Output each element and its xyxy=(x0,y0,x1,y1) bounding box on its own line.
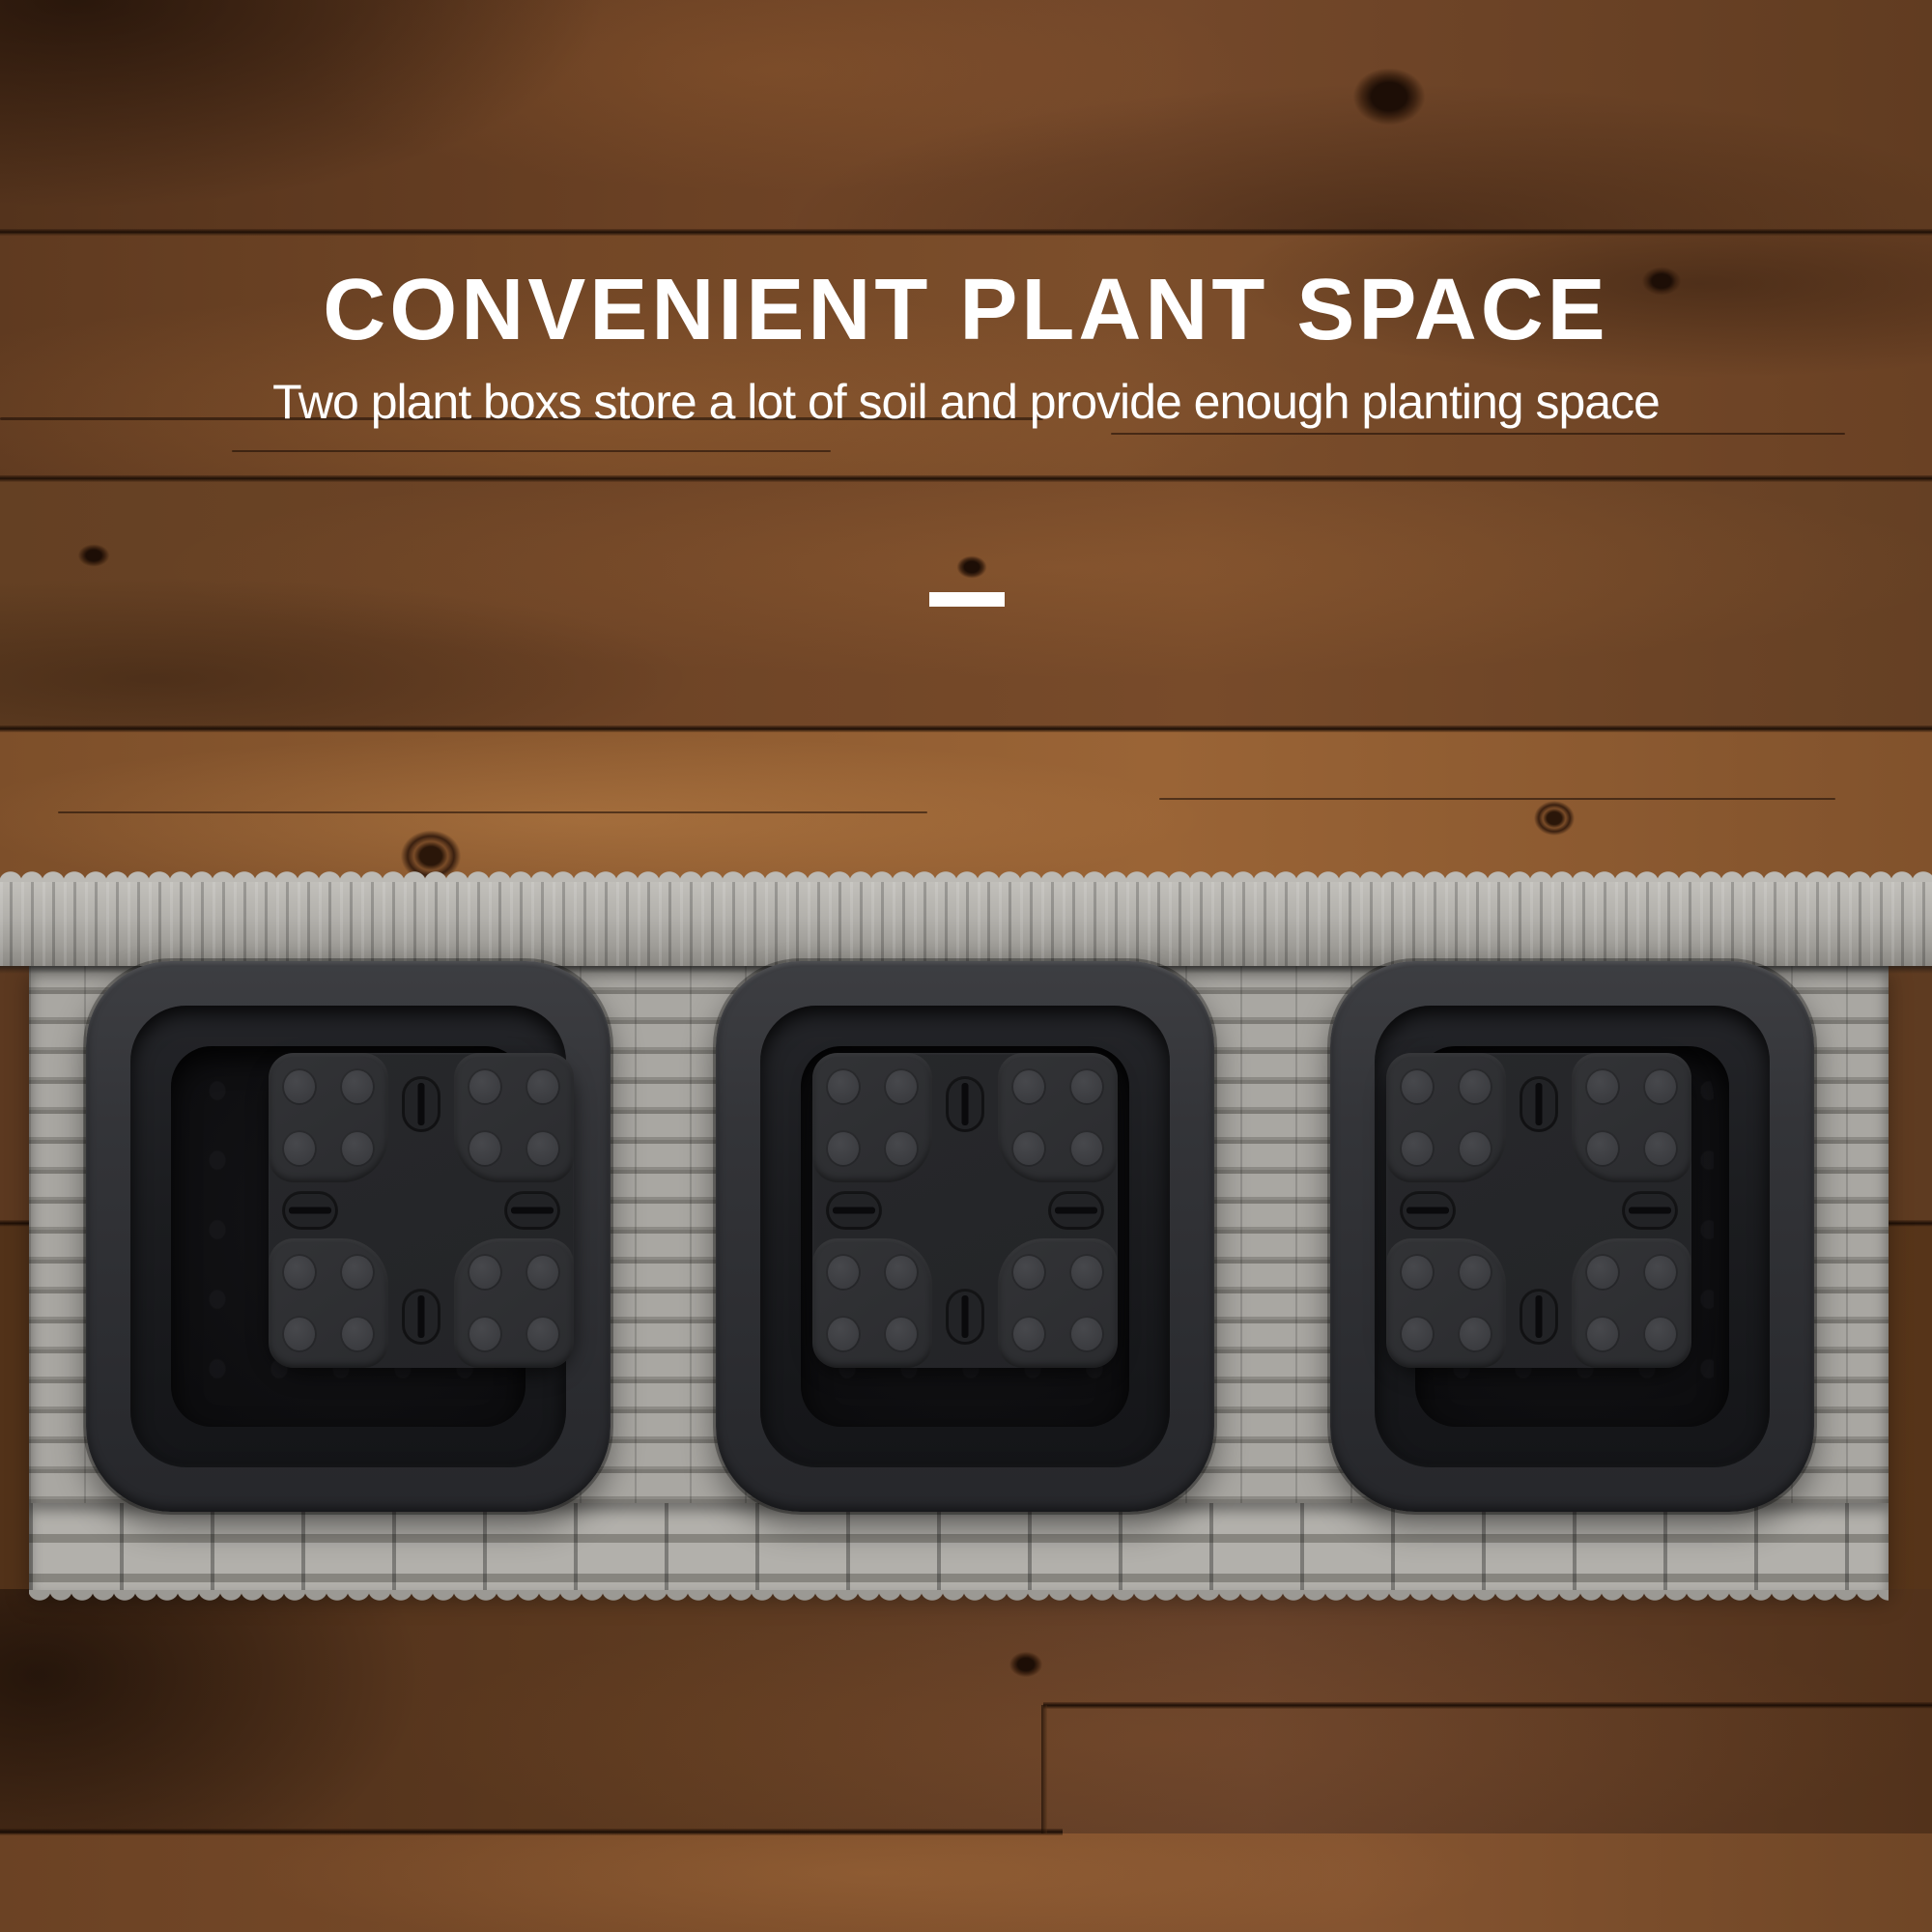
drainage-dot xyxy=(1069,1130,1104,1167)
drainage-dot xyxy=(1400,1254,1435,1291)
drainage-dot xyxy=(1069,1254,1104,1291)
plank-seam xyxy=(1043,1702,1932,1709)
drainage-dot xyxy=(282,1316,317,1352)
plant-pot-center xyxy=(716,961,1214,1512)
drainage-dot xyxy=(282,1254,317,1291)
drainage-dot xyxy=(1458,1130,1492,1167)
plant-pot-left xyxy=(86,961,611,1512)
drainage-dot xyxy=(526,1068,560,1105)
drainage-dot xyxy=(1011,1130,1046,1167)
screw-slot xyxy=(1048,1191,1104,1230)
screw-slot xyxy=(1520,1076,1558,1132)
insert-pad xyxy=(998,1238,1118,1368)
wood-knot xyxy=(1343,60,1435,133)
drainage-dot xyxy=(468,1254,502,1291)
insert-pad xyxy=(269,1053,388,1182)
wood-crack xyxy=(58,811,927,813)
screw-slot xyxy=(1520,1289,1558,1345)
drainage-dot xyxy=(1011,1254,1046,1291)
drainage-dot xyxy=(884,1254,919,1291)
drainage-dot xyxy=(526,1316,560,1352)
screw-slot xyxy=(504,1191,560,1230)
drainage-dot xyxy=(884,1068,919,1105)
drainage-dot xyxy=(282,1130,317,1167)
insert-pad xyxy=(812,1053,932,1182)
drainage-dot xyxy=(282,1068,317,1105)
screw-slot xyxy=(826,1191,882,1230)
insert-pad xyxy=(812,1238,932,1368)
insert-pad xyxy=(454,1053,574,1182)
drainage-dot xyxy=(468,1316,502,1352)
drainage-dot xyxy=(884,1316,919,1352)
pot-drainage-insert xyxy=(269,1053,574,1368)
screw-slot xyxy=(1622,1191,1678,1230)
wood-crack xyxy=(1111,433,1845,435)
pot-drainage-insert xyxy=(1386,1053,1691,1368)
wood-crack xyxy=(1159,798,1835,800)
drainage-dot xyxy=(1585,1254,1620,1291)
insert-pad xyxy=(1386,1053,1506,1182)
drainage-dot xyxy=(826,1254,861,1291)
insert-pad xyxy=(1572,1053,1691,1182)
plank-seam xyxy=(0,1829,1063,1835)
drainage-dot xyxy=(340,1130,375,1167)
insert-pad xyxy=(1386,1238,1506,1368)
screw-slot xyxy=(946,1289,984,1345)
wood-plank xyxy=(0,0,1932,232)
drainage-dot xyxy=(826,1068,861,1105)
banner-subtitle: Two plant boxs store a lot of soil and p… xyxy=(0,376,1932,429)
plank-seam xyxy=(0,725,1932,732)
drainage-dot xyxy=(526,1254,560,1291)
wood-knot xyxy=(952,553,991,582)
product-banner-scene: CONVENIENT PLANT SPACE Two plant boxs st… xyxy=(0,0,1932,1932)
insert-pad xyxy=(269,1238,388,1368)
drainage-dot xyxy=(1011,1068,1046,1105)
wood-knot xyxy=(73,541,114,570)
drainage-dot xyxy=(468,1130,502,1167)
drainage-dot xyxy=(1458,1254,1492,1291)
drainage-dot xyxy=(1069,1316,1104,1352)
drainage-dot xyxy=(340,1068,375,1105)
insert-pad xyxy=(454,1238,574,1368)
drainage-dot xyxy=(1585,1316,1620,1352)
drainage-dot xyxy=(884,1130,919,1167)
wood-plank xyxy=(0,1589,1932,1835)
wood-plank xyxy=(0,730,1932,890)
drainage-dot xyxy=(1585,1068,1620,1105)
drainage-dot xyxy=(468,1068,502,1105)
wood-crack xyxy=(232,450,831,452)
drainage-dot xyxy=(1069,1068,1104,1105)
insert-pad xyxy=(1572,1238,1691,1368)
drainage-dot xyxy=(1643,1316,1678,1352)
drainage-dot xyxy=(1458,1068,1492,1105)
drainage-dot xyxy=(1400,1316,1435,1352)
plank-seam xyxy=(0,229,1932,236)
drainage-dot xyxy=(826,1130,861,1167)
drainage-dot xyxy=(1400,1130,1435,1167)
screw-slot xyxy=(402,1289,440,1345)
drainage-dot xyxy=(340,1316,375,1352)
divider-dash xyxy=(929,592,1005,607)
plank-joint xyxy=(1041,1705,1047,1833)
planter-top-rail xyxy=(0,881,1932,966)
screw-slot xyxy=(282,1191,338,1230)
drainage-dot xyxy=(1458,1316,1492,1352)
drainage-dot xyxy=(1643,1254,1678,1291)
wood-plank xyxy=(0,1833,1932,1932)
drainage-dot xyxy=(526,1130,560,1167)
drainage-dot xyxy=(1011,1316,1046,1352)
drainage-dot xyxy=(1400,1068,1435,1105)
drainage-dot xyxy=(1643,1068,1678,1105)
drainage-dot xyxy=(1585,1130,1620,1167)
insert-pad xyxy=(998,1053,1118,1182)
plant-pot-right xyxy=(1330,961,1814,1512)
wood-knot xyxy=(1005,1648,1047,1681)
wood-knot xyxy=(1528,796,1580,840)
plank-seam xyxy=(0,475,1932,482)
drainage-dot xyxy=(826,1316,861,1352)
screw-slot xyxy=(402,1076,440,1132)
drainage-dot xyxy=(1643,1130,1678,1167)
screw-slot xyxy=(946,1076,984,1132)
drainage-dot xyxy=(340,1254,375,1291)
pot-drainage-insert xyxy=(812,1053,1118,1368)
planter-bottom-weave xyxy=(29,1503,1889,1590)
screw-slot xyxy=(1400,1191,1456,1230)
banner-title: CONVENIENT PLANT SPACE xyxy=(0,267,1932,354)
